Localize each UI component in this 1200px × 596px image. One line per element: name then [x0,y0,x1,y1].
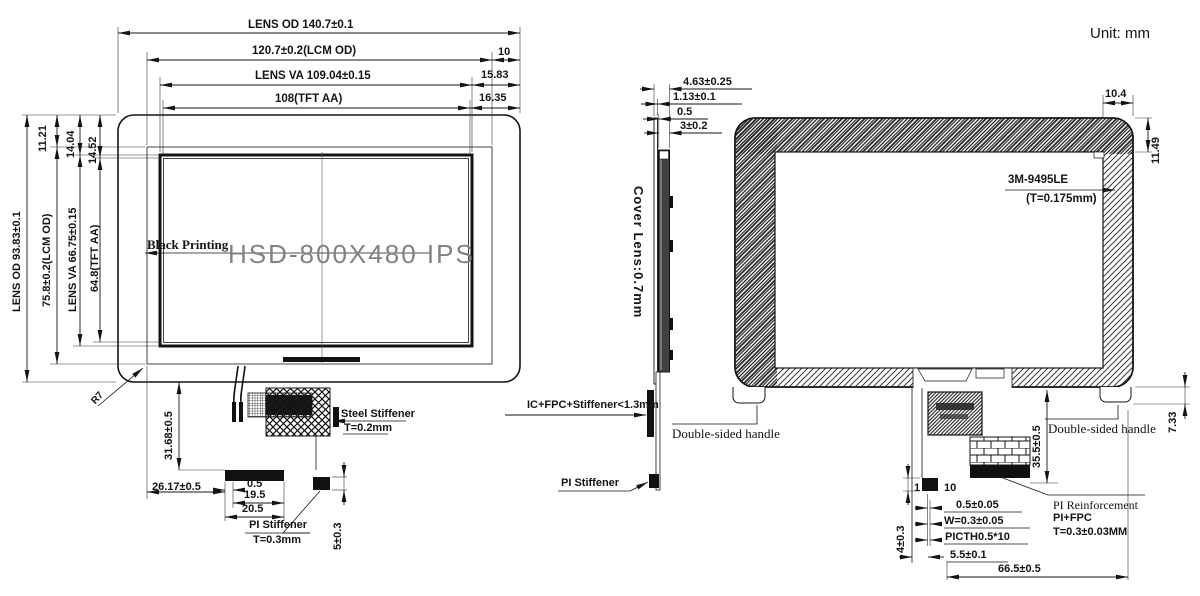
dim-lcm-od-v: 75.8±0.2(LCM OD) [42,214,53,307]
dim-31-68: 31.68±0.5 [164,411,175,460]
dim-14-52: 14.52 [88,136,99,164]
dim-1: 1 [914,483,920,494]
dim-19-5: 19.5 [244,490,265,501]
dim-lens-va-h: LENS VA 109.04±0.15 [255,71,371,83]
dim-66-5: 66.5±0.5 [998,564,1041,575]
dim-tft-aa-v: 64.8(TFT AA) [90,225,101,292]
cover-lens-label: Cover Lens:0.7mm [631,186,646,318]
panel-model-watermark: HSD-800X480 IPS [228,239,475,270]
dim-16-35: 16.35 [479,93,507,104]
steel-stiffener-thickness: T=0.2mm [344,423,392,434]
drawing-linework [0,0,1200,596]
dim-35-5: 35.5±0.5 [1032,425,1043,468]
black-printing-label: Black Printing [147,237,228,253]
pi-fpc-label: PI+FPC [1053,513,1092,524]
dim-10: 10 [498,47,510,58]
dim-5-5: 5.5±0.1 [950,550,987,561]
dim-lens-od-v: LENS OD 93.83±0.1 [12,211,23,312]
dim-picth: PICTH0.5*10 [945,532,1010,543]
dim-tft-aa-h: 108(TFT AA) [275,94,342,106]
engineering-drawing: Unit: mm LENS OD 140.7±0.1 120.7±0.2(LCM… [0,0,1200,596]
handle-right-label: Double-sided handle [1048,421,1156,437]
handle-left-label: Double-sided handle [672,426,780,442]
dim-15-83: 15.83 [481,70,509,81]
dim-3-02: 3±0.2 [680,121,707,132]
dim-26-17: 26.17±0.5 [152,482,201,493]
tape-model-label: 3M-9495LE [1008,175,1068,187]
dim-10-4: 10.4 [1105,89,1126,100]
pi-stiffener-thickness: T=0.3mm [253,535,301,546]
pi-fpc-thickness: T=0.3±0.03MM [1053,527,1127,538]
tape-thickness-label: (T=0.175mm) [1026,194,1097,206]
pi-stiffener-label: PI Stiffener [249,520,307,531]
dim-lens-od-h: LENS OD 140.7±0.1 [248,20,353,32]
pi-stiffener-side-label: PI Stiffener [561,478,619,489]
dim-10-b: 10 [944,483,956,494]
dim-14-04: 14.04 [66,130,77,158]
dim-7-33: 7.33 [1168,412,1179,433]
ic-fpc-stiffener-label: IC+FPC+Stiffener<1.3mm [527,400,659,411]
dim-0-5-005: 0.5±0.05 [956,500,999,511]
pi-reinforcement-label: PI Reinforcement [1053,498,1138,513]
dim-1-13: 1.13±0.1 [673,92,716,103]
dim-4-03: 4±0.3 [896,526,907,553]
dim-20-5: 20.5 [242,504,263,515]
dim-5-03: 5±0.3 [333,523,344,550]
dim-lens-va-v: LENS VA 66.75±0.15 [68,208,79,312]
dim-11-21: 11.21 [38,125,49,152]
dim-11-49: 11.49 [1151,137,1162,164]
dim-lcm-od-h: 120.7±0.2(LCM OD) [252,46,356,58]
unit-label: Unit: mm [1090,25,1150,42]
steel-stiffener-label: Steel Stiffener [341,409,415,420]
dim-4-63: 4.63±0.25 [683,77,732,88]
dim-w-0-3: W=0.3±0.05 [944,516,1004,527]
dim-0-5-side: 0.5 [677,107,692,118]
